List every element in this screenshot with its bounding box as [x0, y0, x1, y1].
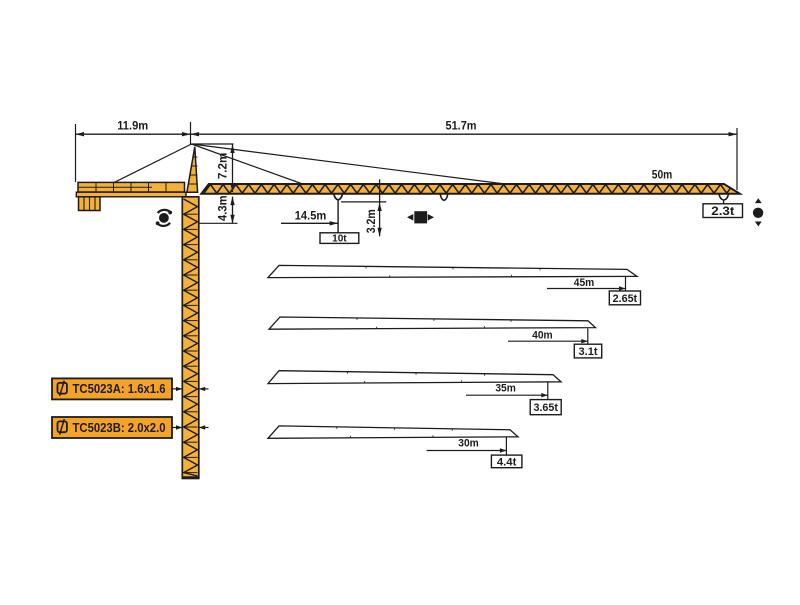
svg-text:10t: 10t — [332, 233, 347, 244]
svg-text:14.5m: 14.5m — [295, 211, 327, 223]
svg-text:2.3t: 2.3t — [711, 206, 734, 218]
svg-text:3.65t: 3.65t — [533, 402, 558, 414]
svg-text:30m: 30m — [458, 438, 479, 450]
svg-text:4.3m: 4.3m — [217, 195, 229, 221]
svg-text:7.2m: 7.2m — [217, 153, 229, 180]
svg-text:TC5023B: 2.0x2.0: TC5023B: 2.0x2.0 — [73, 420, 166, 435]
svg-text:40m: 40m — [532, 329, 553, 341]
svg-text:51.7m: 51.7m — [446, 120, 477, 132]
svg-text:3.2m: 3.2m — [366, 209, 378, 233]
svg-text:3.1t: 3.1t — [579, 346, 598, 358]
svg-text:2.65t: 2.65t — [613, 293, 638, 305]
svg-text:11.9m: 11.9m — [117, 120, 148, 132]
svg-text:45m: 45m — [574, 277, 595, 289]
svg-text:50m: 50m — [652, 168, 673, 182]
svg-text:35m: 35m — [495, 383, 516, 395]
svg-text:4.4t: 4.4t — [497, 456, 517, 468]
svg-text:TC5023A: 1.6x1.6: TC5023A: 1.6x1.6 — [73, 381, 166, 396]
